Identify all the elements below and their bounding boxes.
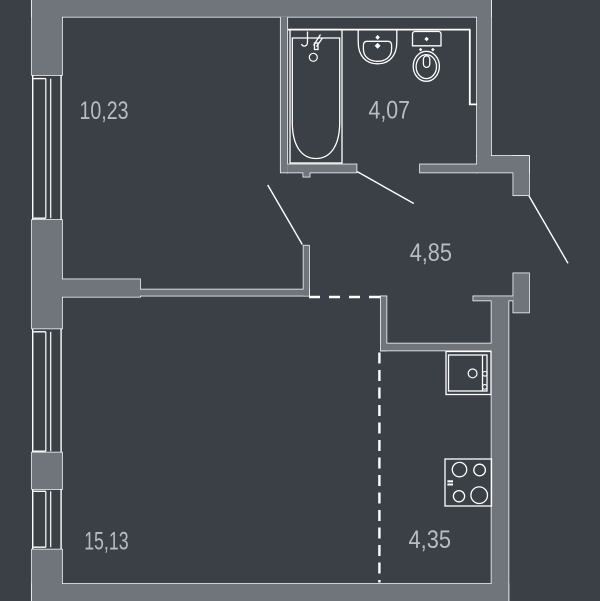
svg-text:4,35: 4,35 <box>409 526 452 554</box>
svg-text:4,07: 4,07 <box>369 97 411 125</box>
svg-text:10,23: 10,23 <box>80 97 129 125</box>
svg-text:15,13: 15,13 <box>84 527 128 555</box>
svg-text:4,85: 4,85 <box>410 239 452 267</box>
